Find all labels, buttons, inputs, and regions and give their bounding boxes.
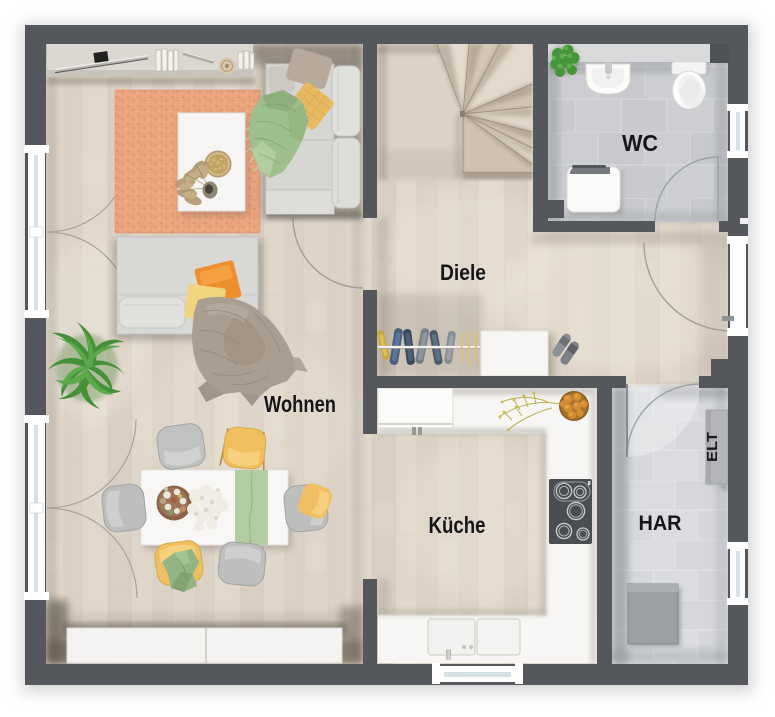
svg-text:Diele: Diele [440,260,486,285]
svg-text:HAR: HAR [639,512,682,535]
svg-text:Küche: Küche [429,512,486,538]
svg-text:WC: WC [622,130,658,156]
svg-text:ELT: ELT [704,432,721,462]
svg-text:Wohnen: Wohnen [264,391,336,417]
